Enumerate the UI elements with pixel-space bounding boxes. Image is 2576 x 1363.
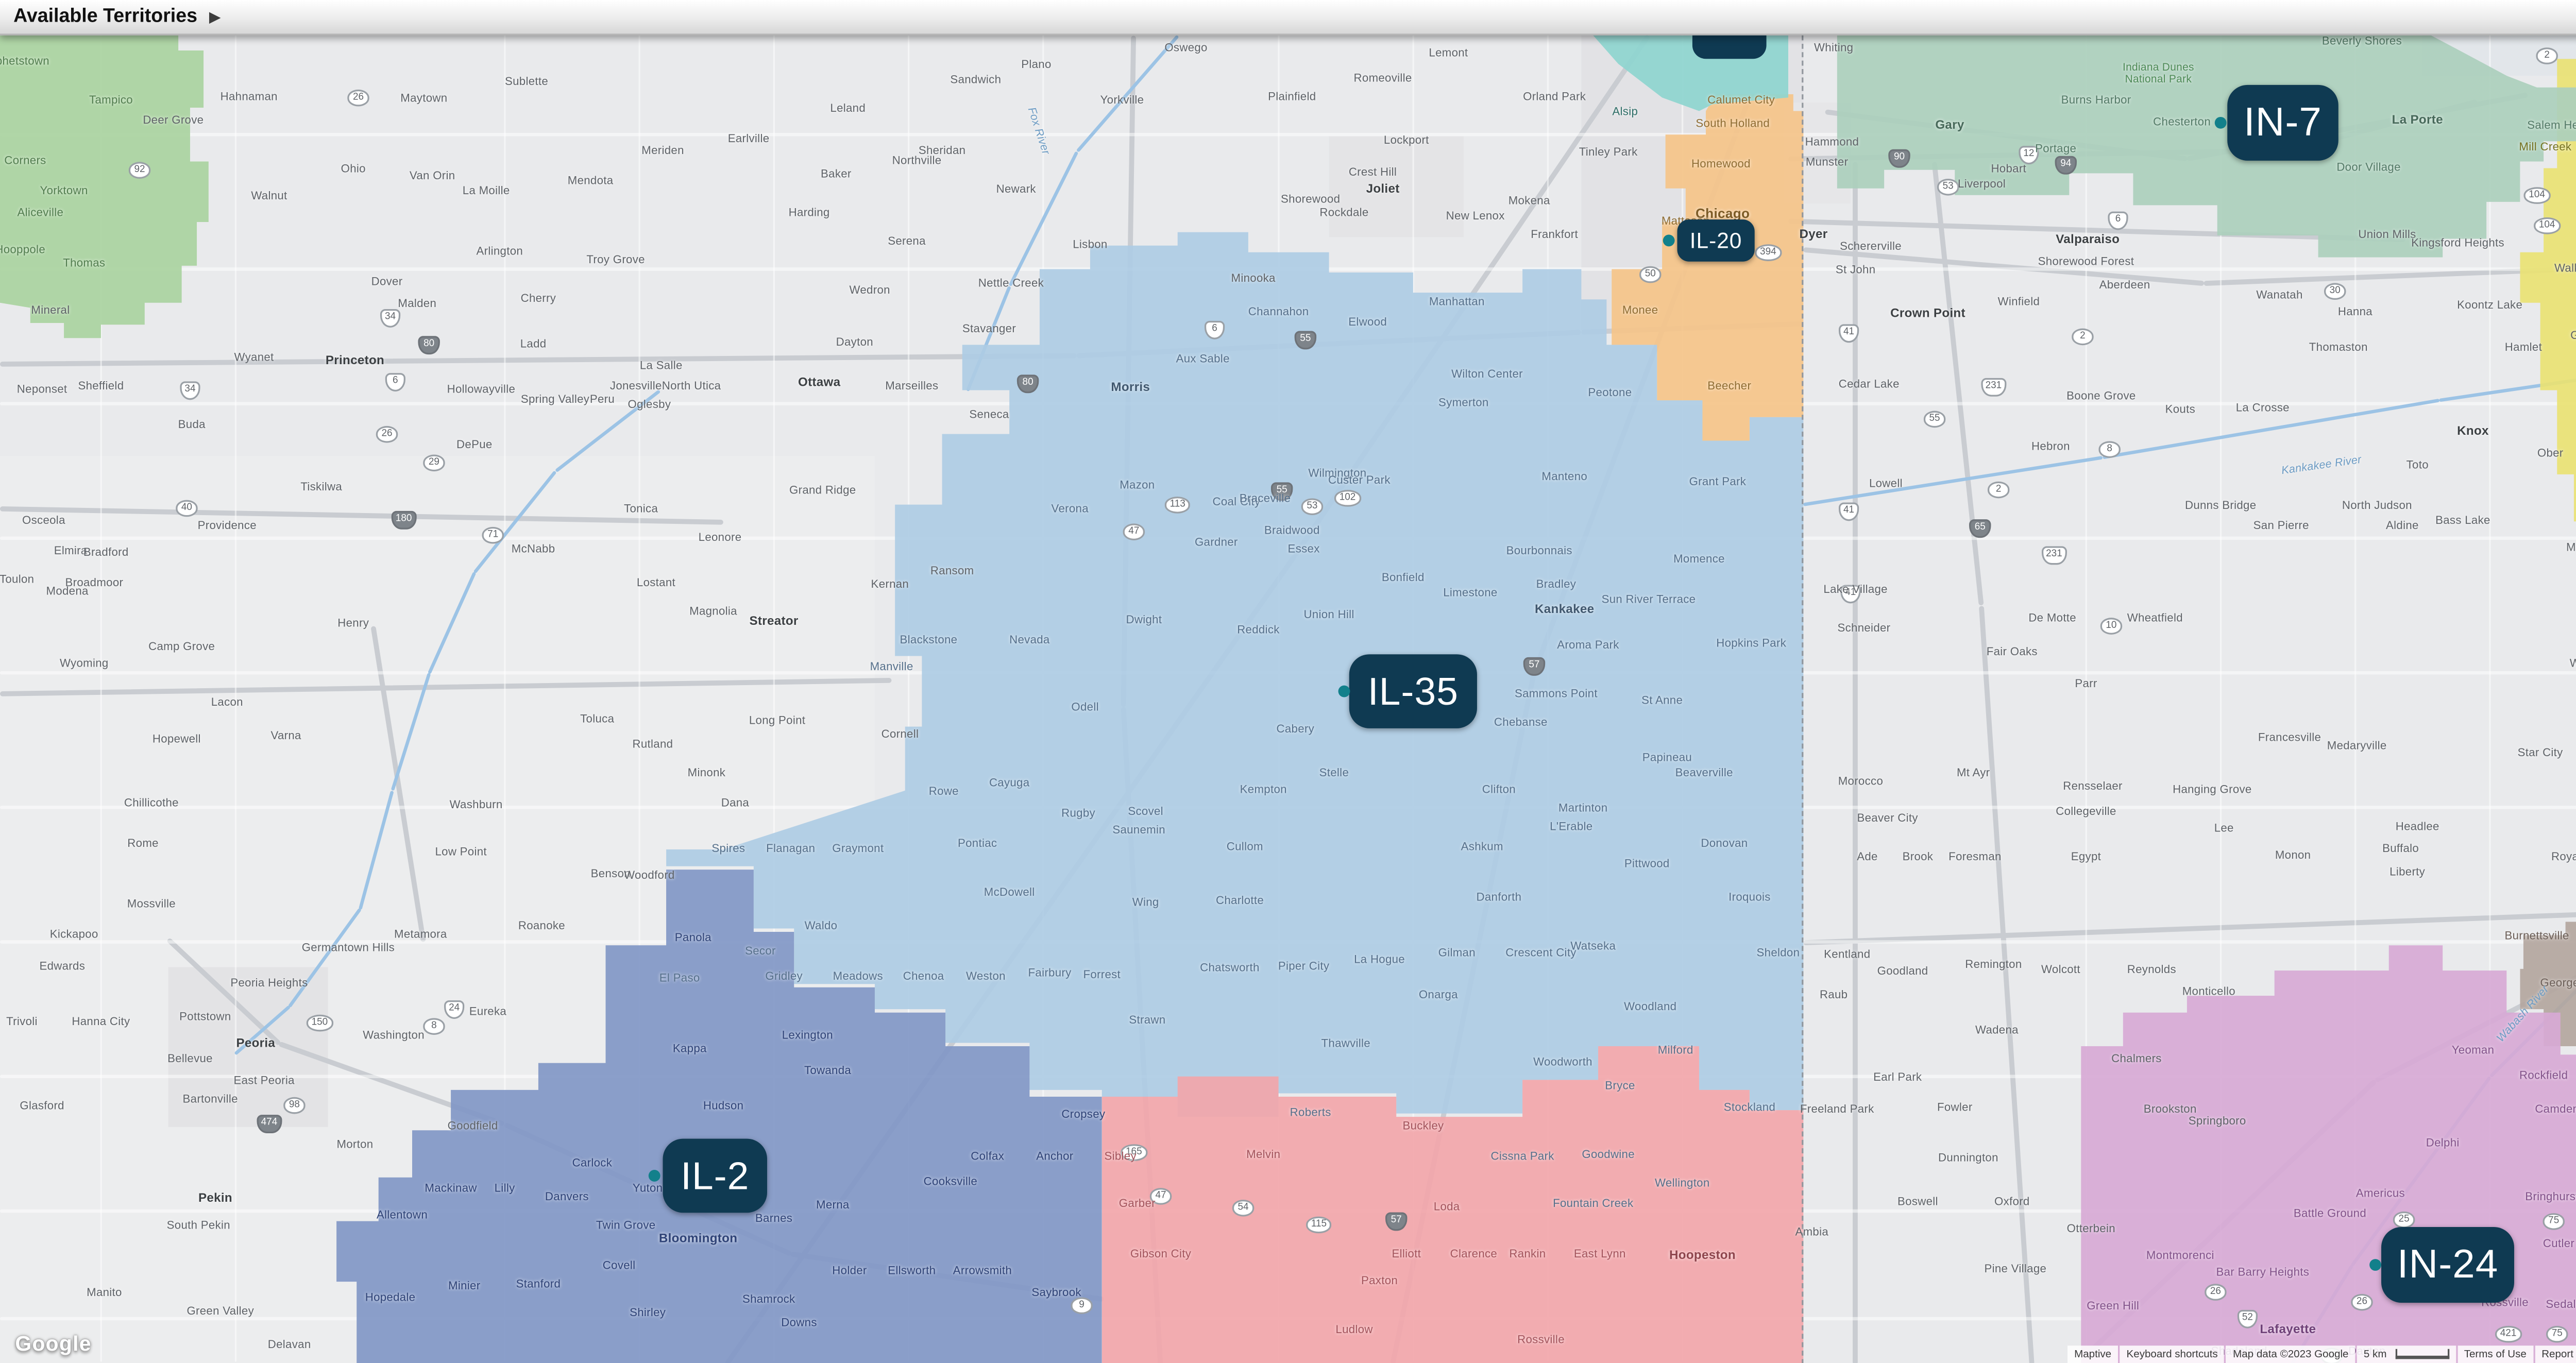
attribution-item[interactable]: Terms of Use [2458, 1345, 2533, 1363]
attribution-item: Keyboard shortcuts [2120, 1345, 2224, 1363]
territory-label-IN-24[interactable]: IN-24 [2381, 1227, 2514, 1303]
territory-label-IL-20[interactable]: IL-20 [1677, 219, 1755, 262]
panel-title: Available Territories [13, 7, 197, 27]
territory-dot-IL-20 [1663, 235, 1675, 247]
attribution-item: Map data ©2023 Google [2226, 1345, 2355, 1363]
territory-badges-layer: IL-35IL-2IL-20IN-7IN-24 [0, 36, 2576, 1363]
attribution-text: Terms of Use [2464, 1348, 2527, 1360]
territory-label-IL-35[interactable]: IL-35 [1349, 654, 1477, 728]
attribution-bar: MaptiveKeyboard shortcutsMap data ©2023 … [2067, 1345, 2576, 1363]
attribution-item[interactable]: Maptive [2067, 1345, 2118, 1363]
map-scale-bar [2395, 1349, 2449, 1359]
attribution-item: 5 km [2357, 1345, 2456, 1363]
map-canvas[interactable]: 2692343480806626294018071555511347531025… [0, 36, 2576, 1363]
territory-dot-IN-7 [2215, 117, 2227, 129]
territory-dot-IL-2 [649, 1170, 660, 1182]
attribution-text: Report a map error [2541, 1348, 2576, 1360]
territory-label-IL-2[interactable]: IL-2 [663, 1139, 767, 1213]
attribution-text: Keyboard shortcuts [2127, 1348, 2218, 1360]
stage: 2692343480806626294018071555511347531025… [0, 0, 2576, 1363]
google-logo: Google [15, 1331, 91, 1355]
territory-dot-IL-35 [1338, 686, 1350, 697]
available-territories-header[interactable]: Available Territories ▶ [0, 0, 2576, 36]
territory-label-IN-7[interactable]: IN-7 [2227, 85, 2338, 161]
attribution-text: Map data ©2023 Google [2233, 1348, 2348, 1360]
territory-dot-IN-24 [2369, 1259, 2381, 1271]
attribution-text: 5 km [2364, 1348, 2387, 1360]
attribution-item[interactable]: Report a map error [2535, 1345, 2576, 1363]
territory-label-partial[interactable] [1692, 36, 1767, 59]
attribution-text: Maptive [2074, 1348, 2111, 1360]
expand-chevron-icon[interactable]: ▶ [209, 8, 221, 27]
app-viewport: 2692343480806626294018071555511347531025… [0, 0, 2576, 1363]
